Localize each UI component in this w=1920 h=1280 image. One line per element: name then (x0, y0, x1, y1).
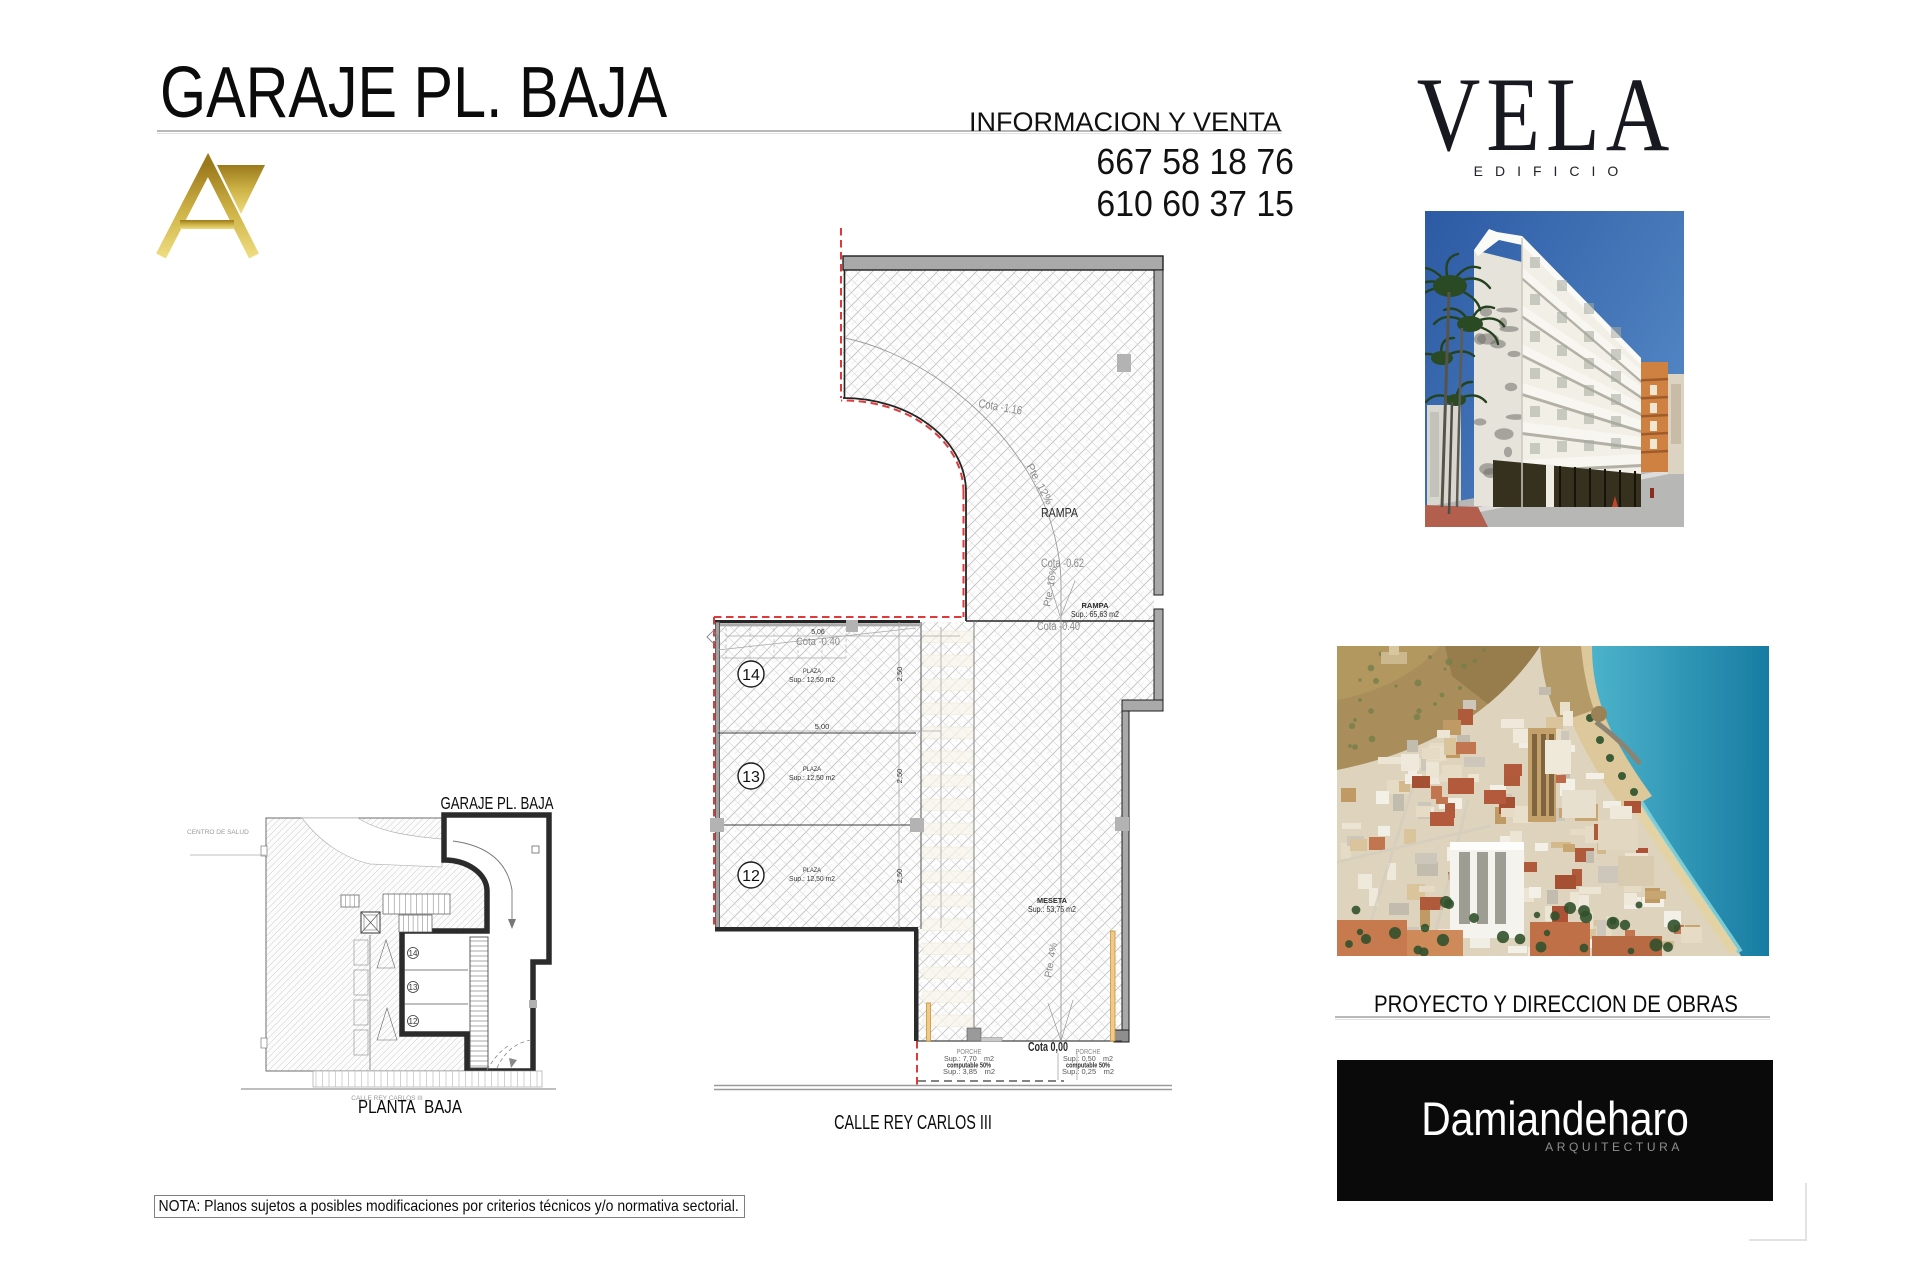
svg-text:2,50: 2,50 (895, 869, 904, 884)
svg-text:MESETA: MESETA (1037, 896, 1068, 905)
svg-text:PLAZA: PLAZA (803, 668, 822, 675)
svg-text:Sup.: 3,85 m2: Sup.: 3,85 m2 (943, 1067, 995, 1076)
svg-text:Sup.: 12,50 m2: Sup.: 12,50 m2 (789, 773, 835, 782)
svg-text:Sup.: 65,63 m2: Sup.: 65,63 m2 (1071, 610, 1119, 619)
svg-text:13: 13 (409, 983, 418, 992)
svg-text:RAMPA: RAMPA (1082, 601, 1110, 610)
svg-text:2,50: 2,50 (895, 667, 904, 682)
svg-text:2,50: 2,50 (895, 769, 904, 784)
svg-text:12: 12 (409, 1017, 418, 1026)
svg-text:13: 13 (742, 769, 760, 786)
svg-text:Sup.: 12,50 m2: Sup.: 12,50 m2 (789, 675, 835, 684)
svg-text:Cota -0.62: Cota -0.62 (1041, 558, 1084, 570)
svg-text:Sup.: 53,75 m2: Sup.: 53,75 m2 (1028, 905, 1076, 914)
svg-text:Sup.: 12,50 m2: Sup.: 12,50 m2 (789, 874, 835, 883)
svg-text:RAMPA: RAMPA (1041, 506, 1079, 520)
svg-text:12: 12 (742, 868, 760, 885)
svg-text:5,06: 5,06 (811, 629, 825, 636)
svg-text:Cota -0.40: Cota -0.40 (796, 636, 840, 648)
svg-text:PLAZA: PLAZA (803, 867, 822, 874)
svg-text:Cota 0,00: Cota 0,00 (1028, 1039, 1068, 1054)
svg-text:Sup.: 0,25 m2: Sup.: 0,25 m2 (1062, 1067, 1114, 1076)
svg-text:14: 14 (742, 667, 760, 684)
svg-text:CENTRO DE SALUD: CENTRO DE SALUD (187, 829, 249, 836)
svg-text:14: 14 (409, 949, 418, 958)
svg-text:Cota -0.40: Cota -0.40 (1037, 621, 1080, 633)
svg-text:PLAZA: PLAZA (803, 766, 822, 773)
svg-text:5,00: 5,00 (815, 722, 830, 731)
svg-text:CALLE REY CARLOS III: CALLE REY CARLOS III (351, 1095, 423, 1102)
